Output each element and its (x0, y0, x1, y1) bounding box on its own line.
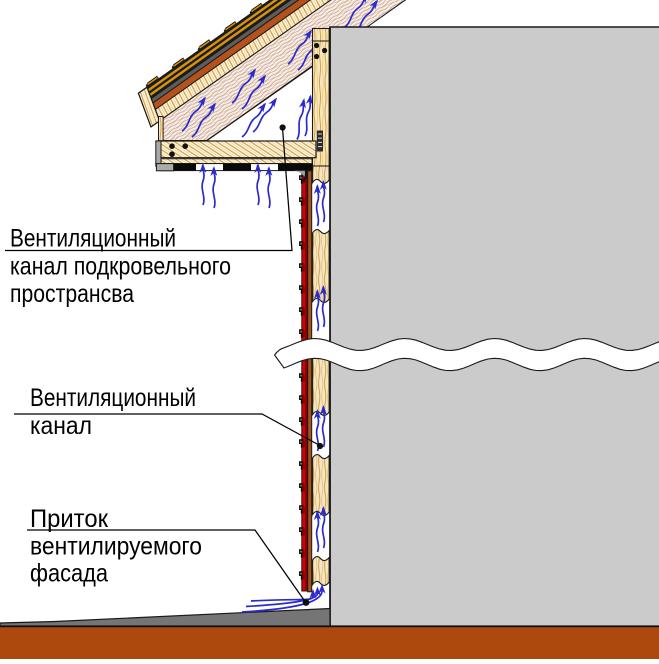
svg-text:Вентиляционный: Вентиляционный (10, 225, 176, 253)
svg-text:канал: канал (30, 412, 92, 440)
svg-text:вентилируемого: вентилируемого (30, 533, 202, 561)
svg-text:Вентиляционный: Вентиляционный (30, 384, 196, 412)
svg-text:пространсва: пространсва (10, 280, 134, 308)
svg-text:канал подкровельного: канал подкровельного (10, 253, 231, 281)
svg-text:Приток: Приток (30, 505, 109, 533)
svg-text:фасада: фасада (30, 560, 108, 588)
